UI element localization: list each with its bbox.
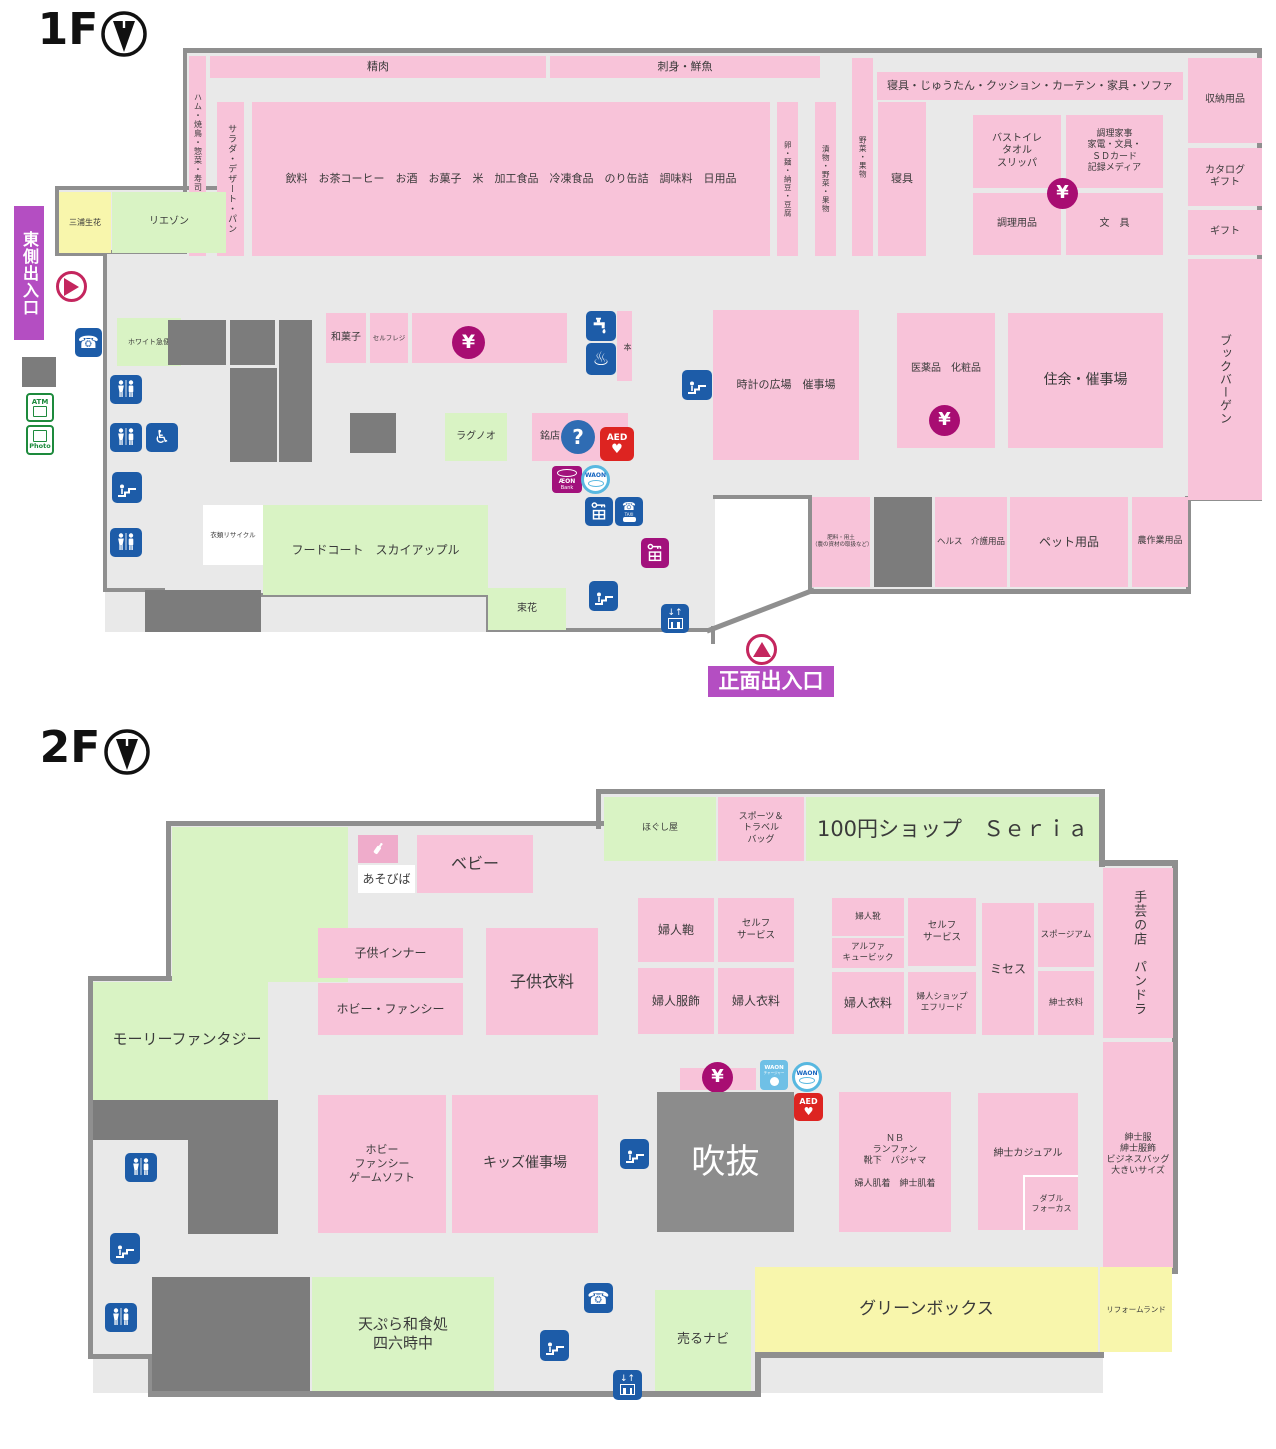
area-chori-yohin[interactable]: 調理用品 [973, 193, 1061, 255]
molly-fantasy-label: モーリーファンタジー [92, 1028, 282, 1050]
floor-1f-title: 1F [28, 2, 108, 56]
aeon-label: ÆON [559, 478, 576, 485]
area-fujin-fukushoku[interactable]: 婦人服飾 [638, 968, 714, 1034]
area-book-bargain[interactable]: ブックバーゲン [1188, 259, 1262, 500]
area-seiniku[interactable]: 精肉 [210, 56, 546, 78]
elevator-arrows: ↓↑ [667, 609, 682, 618]
wheelchair-glyph: ♿ [154, 427, 170, 448]
escalator-icon [682, 370, 712, 400]
area-foodcourt[interactable]: フードコート スカイアップル [263, 505, 488, 595]
toilet-icon [110, 423, 142, 452]
area-liaison[interactable]: リエゾン [112, 192, 226, 253]
coin-locker-icon [641, 538, 669, 568]
area-register-strip[interactable] [412, 313, 567, 363]
area-miura-seika[interactable]: 三浦生花 [59, 192, 111, 253]
phone-glyph: ☎ [622, 501, 636, 512]
area-tabane[interactable]: 束花 [488, 588, 566, 630]
area-ragnoo[interactable]: ラグノオ [445, 413, 507, 461]
backyard-block [22, 357, 56, 387]
area-self-service[interactable]: セルフ サービス [718, 898, 794, 962]
wall [185, 48, 1262, 53]
compass-icon [100, 10, 148, 58]
area-egg-noodle[interactable]: 卵・麺・納豆・豆腐 [777, 102, 798, 256]
area-health-kaigo[interactable]: ヘルス 介護用品 [935, 497, 1007, 587]
area-seria[interactable]: 100円ショップ Ｓｅｒｉａ [806, 797, 1099, 861]
east-entrance-arrow-icon [56, 271, 87, 302]
east-entrance-label: 東側出入口 [14, 206, 44, 340]
area-fukinuke-atrium: 吹抜 [657, 1092, 794, 1232]
waon-label: WAON [796, 1070, 817, 1078]
waon-label: WAON [585, 472, 606, 480]
wall [713, 495, 812, 499]
water-fountain-icon [586, 311, 616, 341]
mall-floor-map: 1F ハム・焼鳥・惣菜・寿司・弁当 精肉 刺身・鮮魚 寝具・じゅうたん・クッショ… [0, 0, 1276, 1449]
backyard-block [874, 497, 932, 587]
wall [88, 976, 172, 981]
elevator-icon: ↓↑ [661, 604, 689, 633]
area-sashimi[interactable]: 刺身・鮮魚 [550, 56, 820, 78]
area-nb-lingerie[interactable]: ＮＢ ランファン 靴下 パジャマ 婦人肌着 紳士肌着 [839, 1092, 951, 1232]
wall [758, 1352, 1104, 1358]
toilet-icon [110, 375, 142, 404]
area-chori-kaji[interactable]: 調理家事 家電・文具・ ＳＤカード 記録メディア [1066, 115, 1163, 188]
area-nosagyo[interactable]: 農作業用品 [1132, 497, 1188, 587]
toilet-icon [125, 1153, 157, 1182]
aeon-bank-label: Bank [561, 485, 574, 491]
waon-charger-icon: WAONチャージャー [760, 1060, 788, 1090]
backyard-block [93, 1100, 278, 1140]
area-kodomo-iryo[interactable]: 子供衣料 [486, 928, 598, 1035]
area-uru-navi[interactable]: 売るナビ [655, 1290, 751, 1391]
elevator-arrows: ↓↑ [620, 1375, 635, 1384]
yen-glyph: ¥ [711, 1066, 724, 1089]
baby-room-icon [358, 835, 398, 863]
backyard-block [145, 590, 261, 632]
area-fujin-kaban[interactable]: 婦人鞄 [638, 898, 714, 962]
area-shingu[interactable]: 寝具 [878, 102, 926, 256]
register-icon: ¥ [929, 405, 960, 436]
charger-label: チャージャー [764, 1071, 785, 1076]
area-reform-land[interactable]: リフォームランド [1100, 1267, 1172, 1352]
coin-locker-icon [585, 497, 613, 526]
area-hon[interactable]: 本 [617, 311, 632, 381]
onsen-glyph: ♨ [592, 348, 609, 370]
wall [810, 589, 1191, 594]
yen-glyph: ¥ [1056, 182, 1069, 205]
wall [148, 1391, 760, 1397]
area-shingu-strip[interactable]: 寝具・じゅうたん・クッション・カーテン・家具・ソファ [877, 72, 1183, 100]
area-fujin-iryo[interactable]: 婦人衣料 [718, 968, 794, 1034]
phone-glyph: ☎ [78, 333, 99, 353]
escalator-icon [620, 1139, 649, 1169]
wall [168, 821, 604, 826]
area-self-regi[interactable]: セルフレジ [370, 313, 408, 363]
phone-icon: ☎ [584, 1283, 613, 1313]
backyard-block [279, 320, 312, 462]
register-icon: ¥ [452, 326, 485, 359]
question-glyph: ? [572, 425, 584, 450]
area-fujin-iryo[interactable]: 婦人衣料 [832, 972, 904, 1034]
waon-station-icon: WAON [792, 1062, 822, 1092]
yen-glyph: ¥ [938, 409, 951, 432]
aed-label: AED [607, 433, 628, 443]
phone-icon: ☎ [75, 328, 102, 357]
area-hobby-game[interactable]: ホビー ファンシー ゲームソフト [318, 1095, 446, 1233]
atm-label: ATM [32, 398, 49, 406]
photo-booth-icon: Photo [26, 425, 54, 455]
area-catalog-gift[interactable]: カタログ ギフト [1188, 148, 1262, 206]
wall [103, 250, 107, 592]
area-jusai[interactable]: 住余・催事場 [1008, 313, 1163, 448]
area-kids-saijijo[interactable]: キッズ催事場 [452, 1095, 598, 1233]
escalator-icon [540, 1330, 569, 1361]
wall [1103, 860, 1178, 866]
aeon-bank-icon: ÆONBank [552, 466, 582, 493]
area-iyakuhin[interactable]: 医薬品 化粧品 ¥ [897, 313, 995, 448]
atm-icon: ATM [26, 393, 54, 422]
area-asobiba[interactable]: あそびば [358, 865, 415, 893]
area-hobby-fancy[interactable]: ホビー・ファンシー [318, 983, 463, 1035]
main-entrance-arrow-icon [746, 634, 777, 665]
area-shuno[interactable]: 収納用品 [1188, 58, 1262, 143]
backyard-block [168, 320, 226, 365]
backyard-block [188, 1140, 278, 1234]
area-fujin-shop-efleed[interactable]: 婦人ショップ エフリード [908, 972, 976, 1034]
taxi-call-icon: ☎TAXI [615, 497, 643, 526]
aed-icon: AED♥ [794, 1093, 823, 1121]
photo-label: Photo [29, 442, 50, 450]
area-hiryo[interactable]: 肥料・用土 （農の資材の取扱など） [812, 497, 870, 587]
area-grocery[interactable]: 飲料 お茶コーヒー お酒 お菓子 米 加工食品 冷凍食品 のり缶詰 調味料 日用… [252, 102, 770, 256]
area-shinshi-fuku[interactable]: 紳士服 紳士服飾 ビジネスバッグ 大きいサイズ [1103, 1042, 1173, 1268]
area-kodomo-inner[interactable]: 子供インナー [318, 928, 463, 978]
escalator-icon [112, 472, 142, 503]
wall [755, 1352, 761, 1397]
area-gift[interactable]: ギフト [1188, 210, 1262, 255]
area-bath-towel[interactable]: バストイレ タオル スリッパ [973, 115, 1061, 188]
escalator-icon [110, 1233, 140, 1264]
wheelchair-icon: ♿ [146, 423, 178, 452]
area-green-box[interactable]: グリーンボックス [755, 1267, 1098, 1352]
main-entrance-label: 正面出入口 [708, 666, 834, 697]
area-irui-recycle[interactable]: 衣類リサイクル [203, 505, 263, 565]
toilet-icon [105, 1303, 137, 1332]
backyard-block [152, 1277, 310, 1391]
area-hogushiya[interactable]: ほぐし屋 [604, 797, 716, 861]
wall [598, 789, 1105, 794]
area-shinshi-iryo[interactable]: 紳士衣料 [1038, 971, 1094, 1035]
aed-icon: AED♥ [600, 427, 634, 461]
area-shugei-pandora[interactable]: 手芸の店 パンドラ [1103, 868, 1173, 1038]
backyard-block [230, 368, 277, 462]
toilet-icon [110, 528, 142, 557]
iyakuhin-label: 医薬品 化粧品 [897, 363, 995, 376]
phone-glyph: ☎ [587, 1288, 609, 1309]
register-icon: ¥ [1047, 178, 1078, 209]
area-double-focus[interactable]: ダブル フォーカス [1023, 1175, 1078, 1230]
area-fujin-kutsu[interactable]: 婦人靴 [832, 898, 904, 936]
backyard-block [230, 320, 275, 365]
register-icon: ¥ [702, 1062, 733, 1093]
area-tokei-hiroba[interactable]: 時計の広場 催事場 [713, 310, 859, 460]
area-self-service[interactable]: セルフ サービス [908, 898, 976, 966]
waon-station-icon: WAON [581, 465, 610, 494]
area-sporium[interactable]: スポージアム [1038, 903, 1094, 967]
wall [706, 588, 815, 634]
wall [166, 821, 171, 981]
area-yasai[interactable]: 野菜・果物 [852, 58, 873, 256]
wall [88, 1354, 152, 1359]
area-pet[interactable]: ペット用品 [1010, 497, 1128, 587]
area-tsukemono[interactable]: 漬物・野菜・果物 [815, 102, 836, 256]
area-mrs[interactable]: ミセス [982, 903, 1034, 1035]
escalator-icon [589, 581, 618, 611]
backyard-block [350, 413, 396, 453]
compass-icon [103, 728, 151, 776]
wall [1099, 789, 1105, 867]
hot-water-icon: ♨ [586, 343, 616, 375]
elevator-icon: ↓↑ [613, 1370, 642, 1400]
area-tempura-shirokujichu[interactable]: 天ぷら和食処 四六時中 [312, 1277, 494, 1391]
area-alpha-cubic[interactable]: アルファ キュービック [832, 938, 904, 968]
area-baby[interactable]: ベビー [417, 835, 533, 893]
area-wagashi[interactable]: 和菓子 [326, 313, 366, 363]
floor-2f-title: 2F [28, 720, 112, 774]
area-sports-travel-bag[interactable]: スポーツ＆ トラベル バッグ [718, 797, 804, 861]
yen-glyph: ¥ [462, 331, 475, 355]
information-icon: ? [561, 420, 595, 454]
meiten-label: 銘店 [540, 431, 560, 444]
area-bungu[interactable]: 文 具 [1066, 193, 1163, 255]
